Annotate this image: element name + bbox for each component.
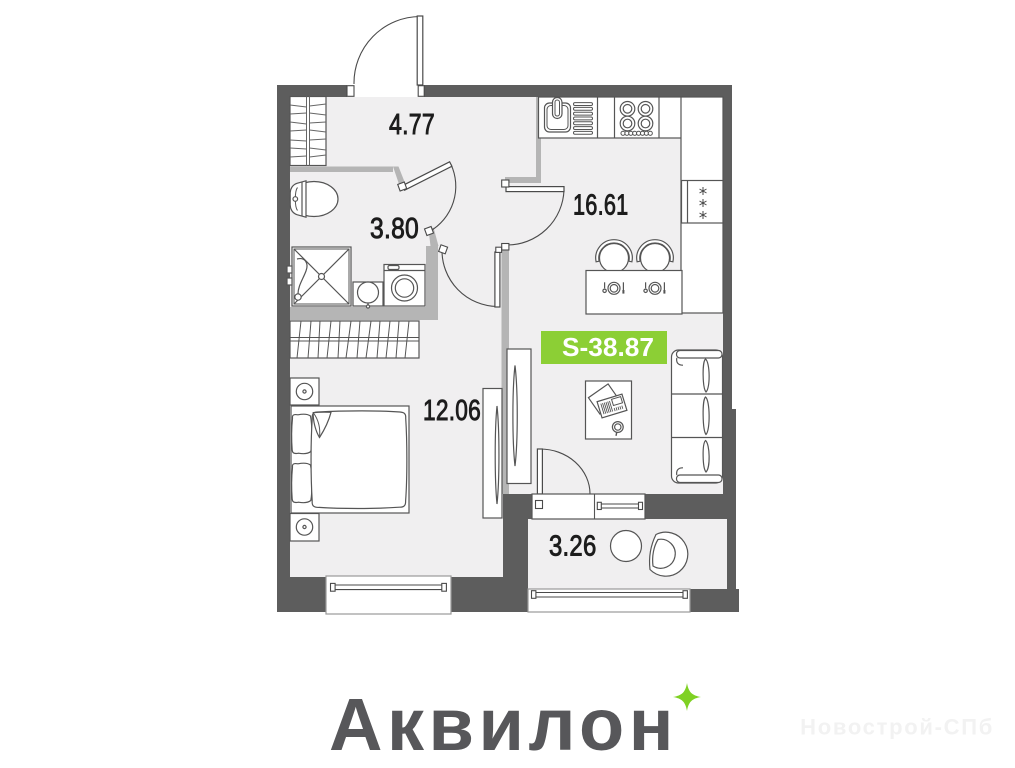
svg-text:4.77: 4.77 [389,109,435,141]
svg-text:S-38.87: S-38.87 [562,334,654,362]
svg-text:Новострой-СПб: Новострой-СПб [800,715,994,740]
svg-text:3.80: 3.80 [370,213,419,245]
svg-text:12.06: 12.06 [423,395,481,427]
svg-text:16.61: 16.61 [573,190,629,222]
svg-text:Аквилон: Аквилон [329,683,678,766]
svg-text:3.26: 3.26 [549,531,597,563]
